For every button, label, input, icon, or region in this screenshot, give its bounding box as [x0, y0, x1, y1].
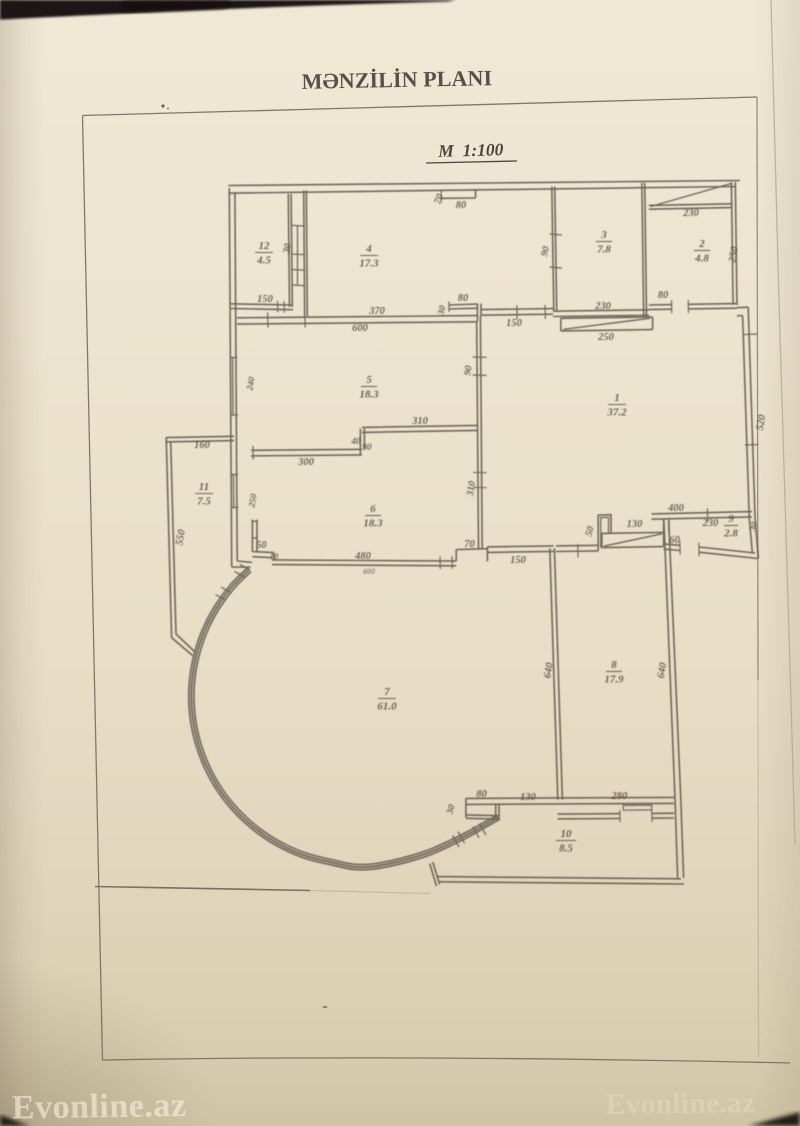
svg-text:80: 80 — [476, 789, 487, 800]
svg-text:480: 480 — [354, 551, 372, 562]
svg-text:130: 130 — [627, 519, 644, 530]
svg-text:600: 600 — [363, 567, 375, 576]
svg-text:8.5: 8.5 — [559, 843, 573, 855]
svg-text:7.8: 7.8 — [597, 244, 611, 256]
svg-text:18.3: 18.3 — [363, 518, 383, 530]
svg-text:2: 2 — [698, 238, 705, 250]
svg-text:10: 10 — [270, 551, 279, 561]
svg-text:400: 400 — [667, 503, 685, 514]
svg-text:40: 40 — [351, 436, 362, 446]
svg-text:160: 160 — [194, 440, 211, 451]
svg-text:17.9: 17.9 — [604, 674, 624, 686]
svg-text:280: 280 — [611, 791, 629, 802]
svg-text:12: 12 — [259, 240, 271, 252]
svg-text:150: 150 — [510, 555, 527, 566]
svg-text:Evonline.az: Evonline.az — [12, 1087, 187, 1126]
svg-text:7: 7 — [384, 686, 390, 698]
svg-text:3: 3 — [600, 229, 607, 241]
svg-text:60: 60 — [669, 535, 680, 546]
svg-text:230: 230 — [682, 208, 700, 219]
svg-text:230: 230 — [702, 518, 720, 529]
svg-text:61.0: 61.0 — [377, 701, 397, 713]
svg-text:130: 130 — [520, 792, 537, 803]
svg-text:Evonline.az: Evonline.az — [606, 1087, 756, 1121]
svg-text:30: 30 — [281, 243, 294, 256]
svg-text:6: 6 — [370, 503, 376, 515]
svg-text:300: 300 — [297, 457, 315, 468]
svg-text:80: 80 — [456, 200, 467, 211]
svg-text:80: 80 — [658, 290, 669, 301]
svg-text:80: 80 — [458, 293, 469, 304]
svg-text:5: 5 — [366, 374, 372, 386]
svg-text:90: 90 — [363, 442, 373, 452]
svg-text:37.2: 37.2 — [606, 407, 627, 419]
svg-text:310: 310 — [411, 416, 429, 427]
svg-text:600: 600 — [352, 323, 369, 334]
svg-text:150: 150 — [506, 318, 523, 329]
svg-text:370: 370 — [368, 306, 386, 317]
svg-text:17.3: 17.3 — [359, 258, 379, 270]
svg-text:1: 1 — [614, 392, 620, 404]
svg-text:2.8: 2.8 — [723, 528, 738, 540]
svg-text:230: 230 — [594, 301, 612, 312]
svg-text:7.5: 7.5 — [197, 496, 211, 508]
svg-text:18.3: 18.3 — [359, 389, 379, 401]
svg-text:90: 90 — [462, 365, 475, 377]
svg-text:50: 50 — [257, 540, 267, 551]
svg-text:10: 10 — [561, 828, 573, 840]
svg-text:4.5: 4.5 — [256, 255, 271, 267]
svg-text:9: 9 — [728, 513, 734, 525]
svg-text:8: 8 — [611, 659, 617, 671]
svg-text:250: 250 — [597, 332, 615, 343]
svg-text:4.8: 4.8 — [694, 253, 709, 265]
svg-text:4: 4 — [365, 243, 372, 255]
svg-text:M 1:100: M 1:100 — [437, 139, 504, 161]
svg-text:150: 150 — [257, 294, 274, 305]
svg-text:11: 11 — [199, 481, 209, 493]
svg-text:70: 70 — [464, 539, 475, 550]
svg-text:MƏNZİLİN PLANI: MƏNZİLİN PLANI — [301, 65, 492, 94]
